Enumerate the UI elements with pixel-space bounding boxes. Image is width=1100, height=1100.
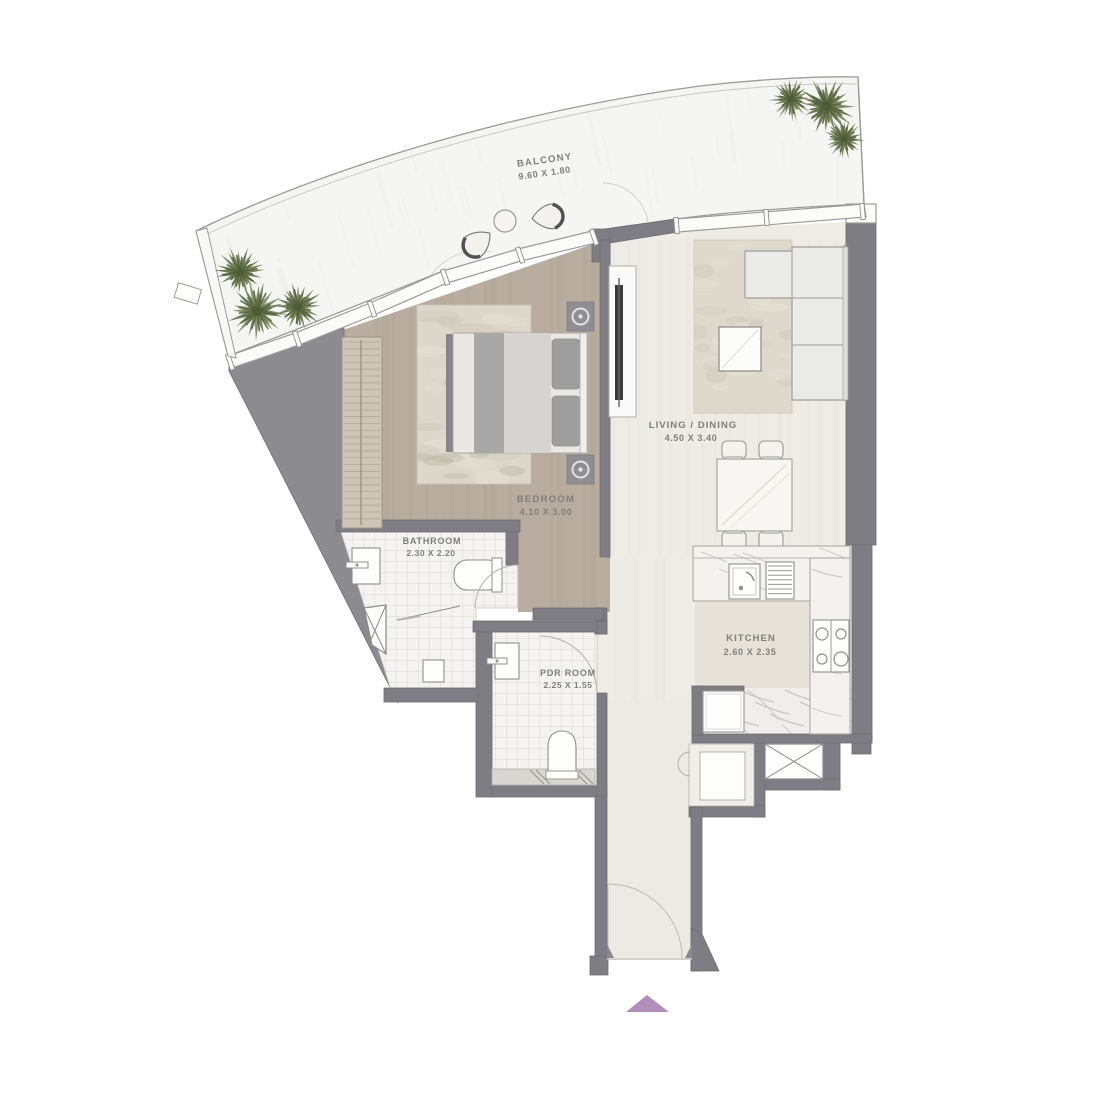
svg-text:BATHROOM: BATHROOM: [403, 536, 462, 546]
svg-text:2.60 X 2.35: 2.60 X 2.35: [724, 647, 777, 657]
svg-text:2.30 X 2.20: 2.30 X 2.20: [407, 548, 456, 558]
svg-text:LIVING / DINING: LIVING / DINING: [649, 420, 738, 431]
svg-text:4.50 X 3.40: 4.50 X 3.40: [665, 433, 718, 443]
svg-text:4.10 X 3.00: 4.10 X 3.00: [520, 507, 573, 517]
svg-text:2.25 X 1.55: 2.25 X 1.55: [544, 680, 593, 690]
svg-text:PDR ROOM: PDR ROOM: [540, 668, 596, 678]
svg-text:BEDROOM: BEDROOM: [517, 494, 576, 505]
svg-text:KITCHEN: KITCHEN: [726, 633, 776, 644]
